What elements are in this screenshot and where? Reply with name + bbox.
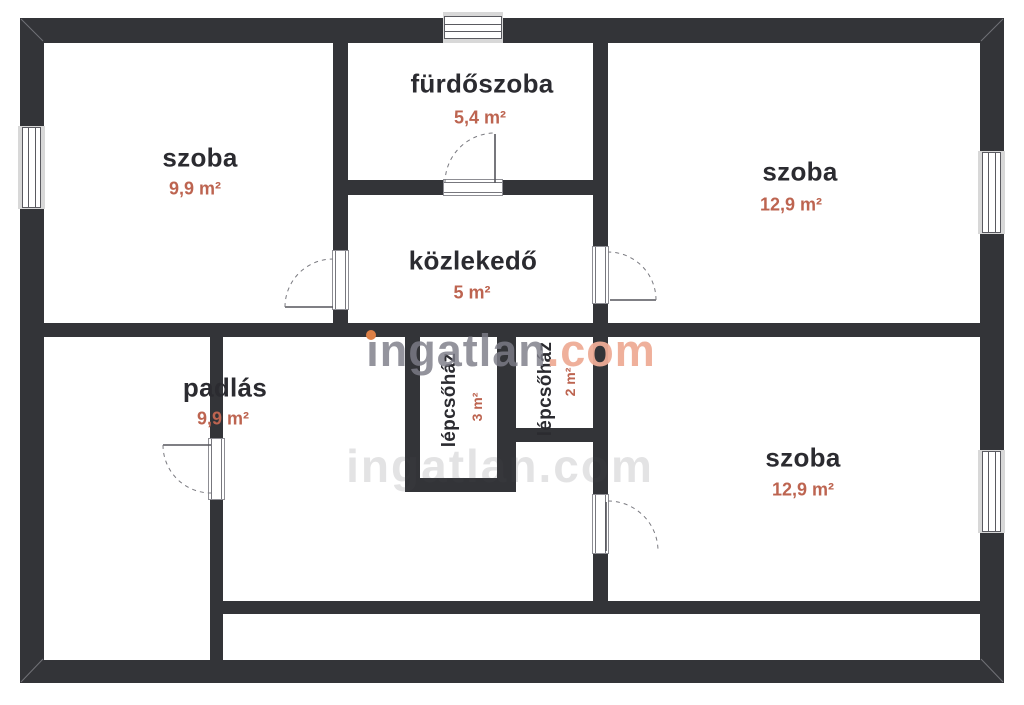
window-left [18,126,45,209]
window-top [443,12,503,43]
door-opening-bathroom [443,179,503,196]
room-area-top-left: 9,9 m² [169,179,221,200]
room-name-bottom-right: szoba [765,443,840,474]
wall-outer-right [980,18,1004,683]
watermark-orange-dot-icon [366,330,376,340]
room-area-attic: 9,9 m² [197,409,249,430]
window-pane [982,152,1001,233]
window-pane [982,451,1001,532]
window-right-top [978,151,1005,234]
wall-bottom-horizontal [210,601,980,614]
room-name-hallway: közlekedő [409,246,537,277]
room-area-staircase-left: 3 m² [469,393,485,422]
door-arc-room-bottom-right [608,501,658,551]
room-name-top-left: szoba [162,143,237,174]
room-name-attic: padlás [183,373,267,404]
room-area-top-right: 12,9 m² [760,195,822,216]
watermark-brand-name: ingatlan [366,325,547,376]
wall-outer-top [20,18,1004,43]
watermark-brand-tld: .com [547,325,656,376]
room-area-bottom-right: 12,9 m² [772,480,834,501]
floor-plan: szoba 9,9 m² fürdőszoba 5,4 m² szoba 12,… [0,0,1024,705]
door-arc-bathroom [445,133,495,183]
watermark-ghost: ingatlan.com [346,439,654,493]
door-arc-room-top-left [285,259,333,307]
door-opening-room-top-left [332,250,349,310]
room-area-hallway: 5 m² [453,283,490,304]
door-arc-attic [163,445,211,493]
wall-outer-bottom [20,660,1004,683]
door-arc-room-top-right [608,252,656,300]
door-opening-room-top-right [592,246,609,304]
door-opening-room-bottom-right [592,494,609,554]
door-opening-attic [208,438,225,500]
window-pane [444,16,502,39]
window-pane [22,127,41,208]
window-right-bottom [978,450,1005,533]
watermark-brand: ingatlan.com [366,325,656,377]
room-area-bathroom: 5,4 m² [454,108,506,129]
room-name-top-right: szoba [762,157,837,188]
room-name-bathroom: fürdőszoba [410,69,553,100]
wall-outer-left [20,18,44,683]
